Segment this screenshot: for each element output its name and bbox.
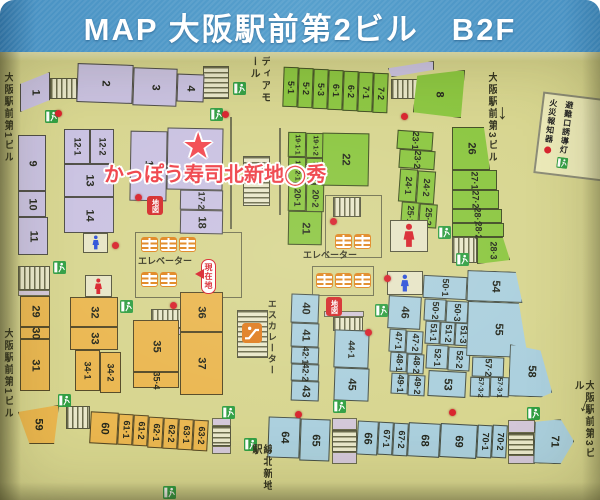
shop-block-26: 26 [452, 127, 490, 170]
page-title: MAP 大阪駅前第2ビル B2F [84, 4, 517, 49]
shop-block-17-2: 17·2 [180, 190, 223, 211]
shop-number: 5·2 [301, 81, 310, 94]
legend-box: 火災報知器 避難口誘導灯 [533, 92, 600, 183]
shop-block-52-1: 52·1 [425, 344, 448, 369]
shop-block-11: 11 [18, 217, 48, 255]
shop-number: 47·1 [393, 331, 403, 349]
highlighted-shop-name: かっぽう寿司北新地◯秀 [104, 158, 326, 187]
shop-number: 61·1 [121, 420, 131, 438]
shop-number: 41 [299, 329, 310, 342]
fire-alarm-dot-icon [384, 275, 391, 282]
shop-block-7-2: 7·2 [372, 73, 388, 113]
shop-block-19-1-1: 19·1·1 [288, 132, 306, 157]
shop-number: 47·2 [410, 333, 420, 351]
shop-number: 23·2 [412, 150, 422, 169]
shop-block-67-1: 67·1 [377, 422, 394, 456]
shop-number: 57·3·2 [476, 377, 484, 397]
shop-block-34-1: 34·1 [75, 350, 100, 391]
shop-number: 52·1 [432, 348, 442, 366]
shop-block-54: 54 [466, 270, 523, 303]
elevator-icon [179, 237, 196, 252]
shop-number: 49·1 [395, 374, 405, 392]
exit-icon [456, 253, 469, 266]
shop-number: 70·2 [495, 432, 505, 450]
shop-block-35-4: 35·4 [133, 372, 179, 388]
stair-landing [508, 455, 535, 464]
stairs-icon [18, 266, 50, 290]
shop-number: 2 [99, 80, 110, 87]
exit-icon [120, 300, 133, 313]
shop-block-50-2: 50·2 [423, 298, 446, 321]
shop-number: 66 [362, 432, 374, 445]
shop-block-42-2: 42·2 [291, 364, 320, 382]
shop-number: 20·1 [292, 188, 301, 206]
shop-block-32: 32 [70, 297, 118, 327]
shop-number: 33 [89, 332, 100, 344]
shop-number: 24·1 [403, 176, 413, 195]
shop-number: 26 [466, 142, 477, 154]
shop-number: 14 [84, 209, 95, 221]
shop-block-9: 9 [18, 135, 46, 191]
shop-number: 70·1 [480, 432, 490, 450]
shop-number: 53 [441, 378, 453, 391]
shop-block-29: 29 [20, 296, 50, 327]
shop-block-18: 18 [180, 210, 223, 235]
shop-block-12-1: 12·1 [64, 129, 90, 164]
exit-icon [53, 261, 66, 274]
map-text-label: 大阪駅前第1ビル [2, 328, 13, 420]
legend-exit-light: 避難口誘導灯 [556, 100, 575, 171]
elevator-icon [141, 237, 158, 252]
shop-number: 52·2 [454, 350, 464, 368]
shop-number: 48·2 [411, 355, 421, 373]
shop-number: 35·4 [151, 371, 160, 389]
shop-number: 65 [309, 434, 320, 447]
directory-map-photo: MAP 大阪駅前第2ビル B2F 12349101112·112·2131415… [0, 0, 600, 500]
shop-block-24-1: 24·1 [398, 168, 418, 202]
shop-block-43: 43 [291, 381, 320, 402]
shop-block-49-2: 49·2 [407, 375, 425, 397]
you-are-here-arrow-icon [190, 269, 204, 279]
shop-number: 54 [489, 280, 500, 293]
shop-number: 68 [418, 434, 430, 447]
stairs-icon [391, 79, 419, 99]
shop-block-7-1: 7·1 [357, 72, 373, 112]
map-text-label: ディアモール [248, 56, 270, 114]
exit-icon [556, 157, 568, 169]
shop-block-42-1: 42·1 [291, 347, 320, 365]
shop-number: 29 [30, 305, 41, 317]
shop-block-62-1: 62·1 [147, 417, 164, 449]
womens-restroom-icon [390, 220, 428, 252]
shop-block-33: 33 [70, 327, 118, 350]
shop-block-46: 46 [387, 295, 422, 330]
exit-icon [163, 486, 176, 499]
map-text-label: 大阪駅前第3ビル [486, 72, 497, 164]
shop-number: 69 [453, 435, 465, 448]
shop-number: 17·2 [197, 191, 206, 209]
fire-alarm-dot-icon [295, 411, 302, 418]
exit-icon [222, 406, 235, 419]
shop-block-5-2: 5·2 [297, 68, 313, 108]
shop-number: 12·1 [72, 137, 81, 155]
shop-block-53: 53 [427, 370, 466, 398]
shop-block-70-2: 70·2 [491, 425, 508, 459]
shop-block-57-2: 57·2 [472, 356, 505, 377]
shop-block-30: 30 [20, 327, 50, 339]
elevator-icon [354, 234, 371, 249]
womens-restroom-icon [85, 275, 112, 297]
stairs-icon [203, 66, 229, 99]
shop-block-24-2: 24·2 [416, 170, 436, 204]
shop-number: 44·1 [347, 340, 357, 358]
shop-block-57-3-1: 57·3·1 [490, 377, 510, 398]
shop-number: 8 [434, 91, 445, 97]
shop-number: 35 [151, 340, 162, 352]
shop-number: 62·1 [151, 423, 161, 441]
shop-block-47-2: 47·2 [405, 331, 423, 355]
shop-block-20-2: 20·2 [306, 184, 324, 212]
fire-alarm-dot-icon [365, 329, 372, 336]
shop-block-48-1: 48·1 [389, 352, 407, 373]
fire-alarm-dot-icon [112, 242, 119, 249]
stair-landing [212, 418, 231, 426]
fire-alarm-dot-icon [55, 110, 62, 117]
shop-block-44-1: 44·1 [333, 329, 369, 368]
shop-block-34-2: 34·2 [100, 352, 121, 393]
shop-block-47-1: 47·1 [388, 329, 406, 353]
mens-restroom-icon [387, 271, 423, 295]
shop-number: 45 [346, 378, 357, 391]
exit-icon [58, 394, 71, 407]
shop-block-61-1: 61·1 [117, 414, 134, 446]
shop-block-31: 31 [20, 339, 50, 391]
shop-block-8: 8 [413, 70, 465, 118]
shop-number: 3 [149, 84, 160, 91]
shop-block-61-2: 61·2 [132, 415, 149, 447]
shop-block-27-2: 27·2 [452, 190, 499, 209]
exit-icon [333, 400, 346, 413]
stairs-icon [508, 433, 534, 455]
shop-block-51-1: 51·1 [424, 321, 440, 345]
shop-number: 42·1 [300, 346, 310, 364]
stairs-icon [212, 426, 231, 446]
shop-number: 27·2 [471, 190, 480, 208]
shop-number: 6·2 [346, 84, 355, 97]
elevator-icon [160, 237, 177, 252]
shop-block-6-2: 6·2 [342, 71, 358, 111]
shop-number: 27·1 [470, 171, 479, 189]
shop-number: 28·3 [489, 241, 498, 259]
shop-block-49-1: 49·1 [390, 373, 408, 395]
floor-guide-board-icon: 地図 [326, 297, 342, 316]
shop-number: 5·1 [286, 80, 295, 93]
shop-block-37: 37 [180, 332, 223, 395]
shop-block-4: 4 [177, 74, 205, 103]
shop-number: 21 [299, 222, 310, 234]
shop-block-27-1: 27·1 [452, 170, 497, 190]
shop-block-45: 45 [333, 367, 369, 401]
shop-number: 12·2 [97, 137, 106, 155]
stair-landing [508, 420, 535, 433]
fire-alarm-dot-icon [401, 113, 408, 120]
shop-block-63-2: 63·2 [192, 420, 209, 452]
shop-number: 58 [525, 365, 536, 378]
shop-block-5-1: 5·1 [282, 67, 298, 107]
shop-block-60: 60 [89, 411, 119, 444]
shop-block-23-2: 23·2 [398, 149, 435, 170]
shop-block-50-3: 50·3 [445, 300, 468, 323]
exit-icon [375, 304, 388, 317]
shop-block-10: 10 [18, 191, 46, 217]
shop-number: 24·2 [421, 178, 431, 197]
shop-number: 18 [196, 216, 207, 228]
stairs-icon [332, 430, 357, 452]
shop-number: 22 [340, 153, 351, 165]
map-text-label: 大阪駅前第1ビル [2, 72, 13, 164]
shop-number: 51·2 [443, 324, 453, 342]
shop-block-40: 40 [291, 294, 320, 324]
shop-number: 51·1 [428, 323, 438, 341]
shop-number: 71 [548, 435, 559, 448]
shop-number: 60 [98, 422, 110, 435]
shop-block-21: 21 [288, 211, 323, 246]
shop-block-5-3: 5·3 [312, 69, 328, 109]
shop-block-62-2: 62·2 [162, 418, 179, 450]
elevator-icon [335, 234, 352, 249]
shop-number: 4 [185, 85, 196, 92]
legend-fire-alarm-label: 火災報知器 [543, 98, 559, 144]
shop-block-68: 68 [407, 422, 441, 458]
arrow-down-icon: ↓ [497, 102, 508, 123]
shop-block-51-2: 51·2 [439, 322, 455, 346]
shop-number: 36 [196, 306, 207, 318]
shop-number: 31 [30, 359, 41, 371]
shop-number: 59 [33, 418, 44, 430]
shop-number: 6·1 [331, 83, 340, 96]
elevator-icon [316, 273, 333, 288]
shop-block-50-1: 50·1 [422, 275, 467, 300]
shop-number: 63·2 [196, 426, 206, 444]
stairs-icon [66, 406, 90, 429]
shop-number: 20·2 [310, 189, 319, 207]
shop-block-35: 35 [133, 320, 179, 372]
shop-block-20-1: 20·1 [288, 183, 306, 211]
exit-icon [233, 82, 246, 95]
shop-number: 57·2 [483, 358, 493, 376]
shop-number: 43 [299, 385, 310, 398]
map-text-label: エレベーター [303, 251, 357, 260]
exit-icon [527, 407, 540, 420]
shop-block-2: 2 [76, 63, 133, 104]
legend-exit-light-label: 避難口誘導灯 [558, 100, 575, 155]
shop-number: 63·1 [181, 425, 191, 443]
stair-landing [332, 452, 357, 464]
map-text-label: エレベーター [138, 257, 192, 266]
fire-alarm-dot-icon [170, 302, 177, 309]
shop-number: 7·2 [376, 86, 385, 99]
stair-landing [332, 418, 357, 430]
elevator-icon [141, 272, 158, 287]
shop-block-36: 36 [180, 292, 223, 332]
shop-number: 64 [278, 431, 289, 444]
shop-block-22: 22 [322, 133, 370, 187]
stairs-icon [50, 78, 77, 99]
shop-number: 49·2 [412, 376, 422, 394]
fire-alarm-dot-icon [544, 146, 552, 154]
shop-block-14: 14 [64, 197, 114, 233]
shop-number: 34·1 [83, 361, 92, 379]
fire-alarm-dot-icon [330, 218, 337, 225]
shop-block-66: 66 [356, 420, 379, 455]
shop-number: 30 [30, 327, 41, 339]
shop-number: 61·2 [136, 421, 146, 439]
shop-number: 13 [84, 174, 95, 186]
shop-block-64: 64 [267, 416, 300, 458]
shop-block-41: 41 [291, 323, 320, 348]
shop-number: 67·2 [396, 430, 406, 448]
shop-number: 50·3 [452, 303, 462, 321]
shop-number: 50·1 [440, 278, 450, 296]
shop-block-57-3-2: 57·3·2 [470, 377, 491, 398]
shop-block-3: 3 [132, 67, 177, 107]
elevator-icon [335, 273, 352, 288]
map-text-label: 線北新地駅 [250, 444, 272, 498]
shop-block-69: 69 [439, 423, 478, 459]
shop-number: 40 [299, 302, 310, 315]
fire-alarm-dot-icon [222, 111, 229, 118]
shop-number: 51·3 [458, 325, 468, 343]
shop-number: 55 [492, 323, 503, 336]
shop-number: 50·2 [430, 301, 440, 319]
shop-number: 19·1·1 [293, 134, 300, 154]
shop-number: 48·1 [394, 353, 404, 371]
stairs-icon [333, 197, 361, 217]
exit-icon [438, 226, 451, 239]
shop-number: 37 [196, 357, 207, 369]
mens-restroom-icon [83, 233, 108, 253]
elevator-icon [160, 272, 177, 287]
shop-number: 57·3·1 [496, 377, 504, 397]
shop-number: 67·1 [381, 429, 391, 447]
shop-number: 5·3 [316, 82, 325, 95]
shop-number: 23·1 [410, 131, 420, 150]
shop-number: 7·1 [361, 85, 370, 98]
shop-number: 10 [27, 198, 38, 210]
escalator-icon [241, 323, 263, 343]
shop-block-48-2: 48·2 [406, 354, 424, 375]
elevator-icon [354, 273, 371, 288]
shop-number: 46 [399, 306, 411, 319]
map-title-banner: MAP 大阪駅前第2ビル B2F [0, 0, 600, 52]
shop-number: 19·1·2 [311, 135, 318, 155]
shop-number: 1 [30, 89, 41, 95]
shop-number: 28·2 [473, 221, 482, 239]
shop-number: 32 [89, 306, 100, 318]
shop-number: 34·2 [106, 363, 115, 381]
shop-block-6-1: 6·1 [327, 70, 343, 110]
shop-number: 42·2 [300, 363, 310, 381]
shop-number: 11 [27, 230, 38, 242]
stair-landing [212, 446, 231, 454]
fire-alarm-dot-icon [449, 409, 456, 416]
floor-guide-board-icon: 地図 [147, 196, 163, 215]
shop-block-65: 65 [299, 418, 330, 461]
shop-block-63-1: 63·1 [177, 419, 194, 451]
fire-alarm-dot-icon [135, 194, 142, 201]
shop-number: 62·2 [166, 424, 176, 442]
map-text-label: エスカレーター [266, 299, 276, 376]
shop-number: 9 [27, 160, 38, 166]
shop-block-28-2: 28·2 [452, 223, 504, 237]
